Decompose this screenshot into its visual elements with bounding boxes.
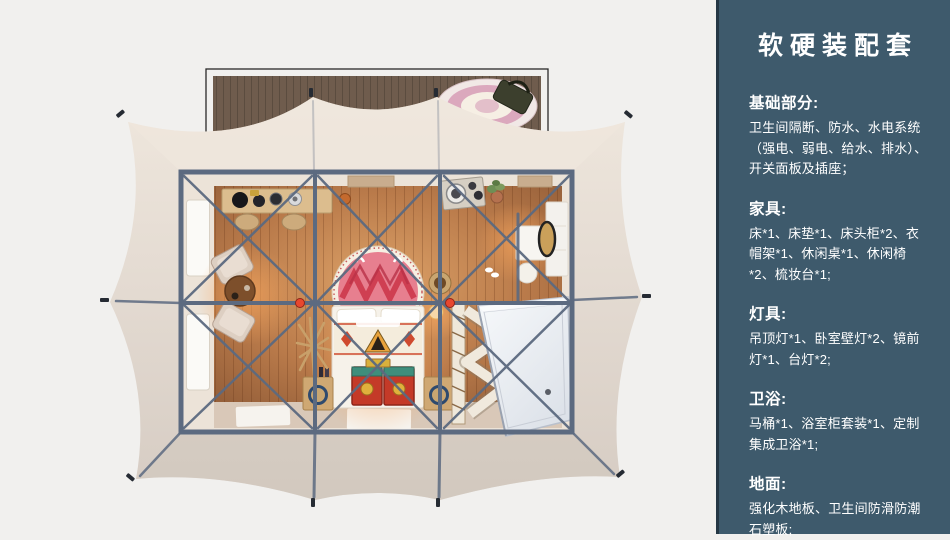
spec-body-furniture: 床*1、床垫*1、床头柜*2、衣帽架*1、休闲桌*1、休闲椅*2、梳妆台*1; <box>749 224 932 286</box>
spec-heading-furniture: 家具: <box>749 197 932 219</box>
window <box>187 200 210 276</box>
stool <box>282 214 306 230</box>
spec-sidebar: 软硬装配套 基础部分: 卫生间隔断、防水、水电系统（强电、弱电、给水、排水）、开… <box>716 0 950 534</box>
tent-floorplan-render <box>0 0 716 534</box>
kettle <box>270 193 282 205</box>
spec-heading-bathroom: 卫浴: <box>749 387 932 409</box>
sidebar-title: 软硬装配套 <box>719 26 950 62</box>
fur-hat <box>232 192 248 208</box>
floorplan-panel <box>0 0 716 534</box>
spec-section-basics: 基础部分: 卫生间隔断、防水、水电系统（强电、弱电、给水、排水）、开关面板及插座… <box>749 91 932 180</box>
spec-body-basics: 卫生间隔断、防水、水电系统（强电、弱电、给水、排水）、开关面板及插座； <box>749 118 932 180</box>
dowry-chest <box>352 367 382 405</box>
spec-section-lighting: 灯具: 吊顶灯*1、卧室壁灯*2、镜前灯*1、台灯*2; <box>749 302 932 370</box>
spec-heading-basics: 基础部分: <box>749 91 932 113</box>
fur-hat <box>253 195 265 207</box>
spec-sections: 基础部分: 卫生间隔断、防水、水电系统（强电、弱电、给水、排水）、开关面板及插座… <box>719 62 950 540</box>
spec-body-bathroom: 马桶*1、浴室柜套装*1、定制集成卫浴*1; <box>749 414 932 455</box>
spec-section-bathroom: 卫浴: 马桶*1、浴室柜套装*1、定制集成卫浴*1; <box>749 387 932 455</box>
spec-section-furniture: 家具: 床*1、床垫*1、床头柜*2、衣帽架*1、休闲桌*1、休闲椅*2、梳妆台… <box>749 197 932 286</box>
vanity-mirror <box>539 222 555 256</box>
ceiling-vent <box>518 176 552 187</box>
spec-heading-lighting: 灯具: <box>749 302 932 324</box>
slippers <box>485 268 493 273</box>
floor-mat <box>236 405 291 427</box>
spec-heading-flooring: 地面: <box>749 472 932 494</box>
slippers <box>491 273 499 278</box>
ceiling-vent <box>348 176 394 187</box>
spec-body-lighting: 吊顶灯*1、卧室壁灯*2、镜前灯*1、台灯*2; <box>749 329 932 370</box>
spec-section-flooring: 地面: 强化木地板、卫生间防滑防潮石塑板; <box>749 472 932 540</box>
